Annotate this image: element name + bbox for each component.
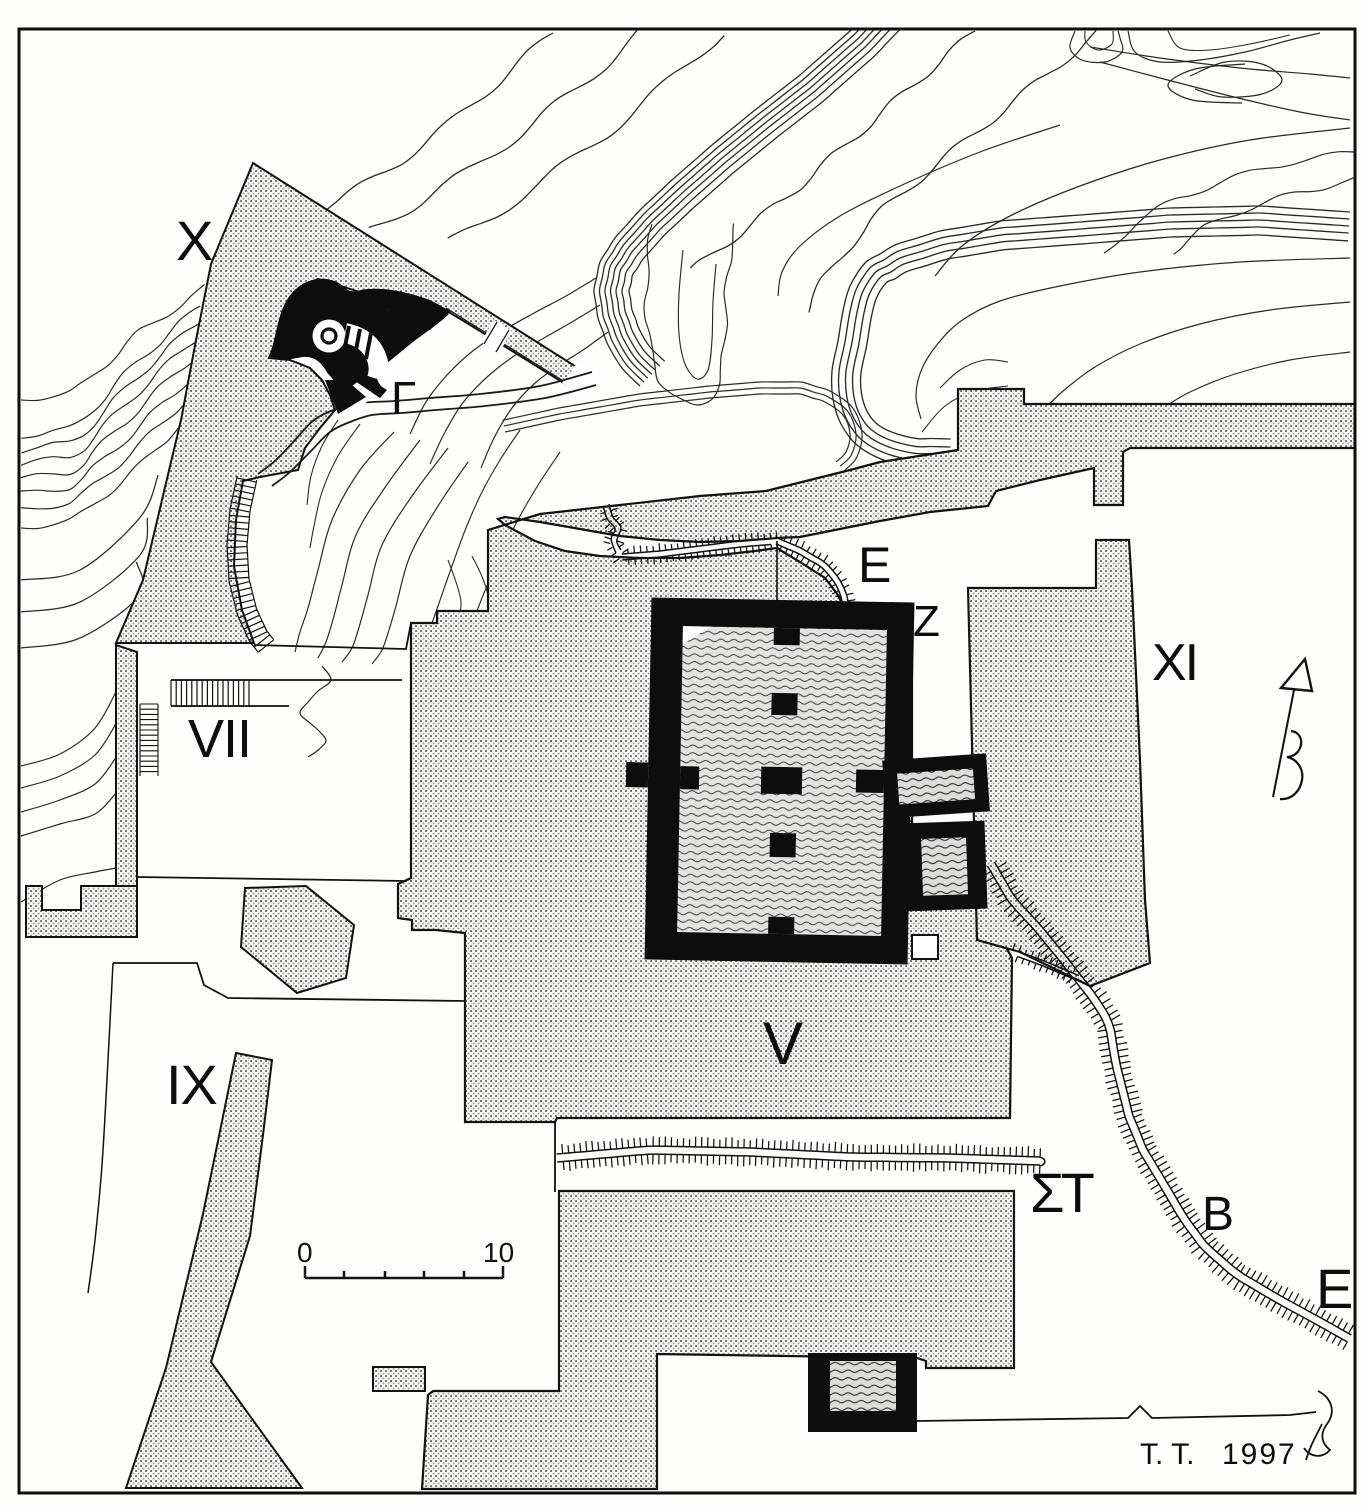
svg-text:Z: Z (913, 597, 940, 646)
svg-text:X: X (176, 209, 213, 272)
svg-text:B: B (1202, 1188, 1234, 1241)
svg-text:1997: 1997 (1222, 1438, 1297, 1471)
svg-text:IX: IX (166, 1053, 218, 1116)
svg-text:XI: XI (1152, 634, 1197, 692)
svg-text:E: E (858, 537, 891, 593)
svg-text:V: V (763, 1010, 803, 1077)
svg-text:T. T.: T. T. (1140, 1438, 1194, 1471)
svg-text:10: 10 (483, 1237, 514, 1268)
svg-text:ΣT: ΣT (1030, 1161, 1094, 1224)
svg-text:E: E (1316, 1257, 1353, 1320)
svg-text:Γ: Γ (391, 372, 416, 424)
svg-text:0: 0 (297, 1237, 313, 1268)
svg-text:VII: VII (188, 709, 251, 769)
